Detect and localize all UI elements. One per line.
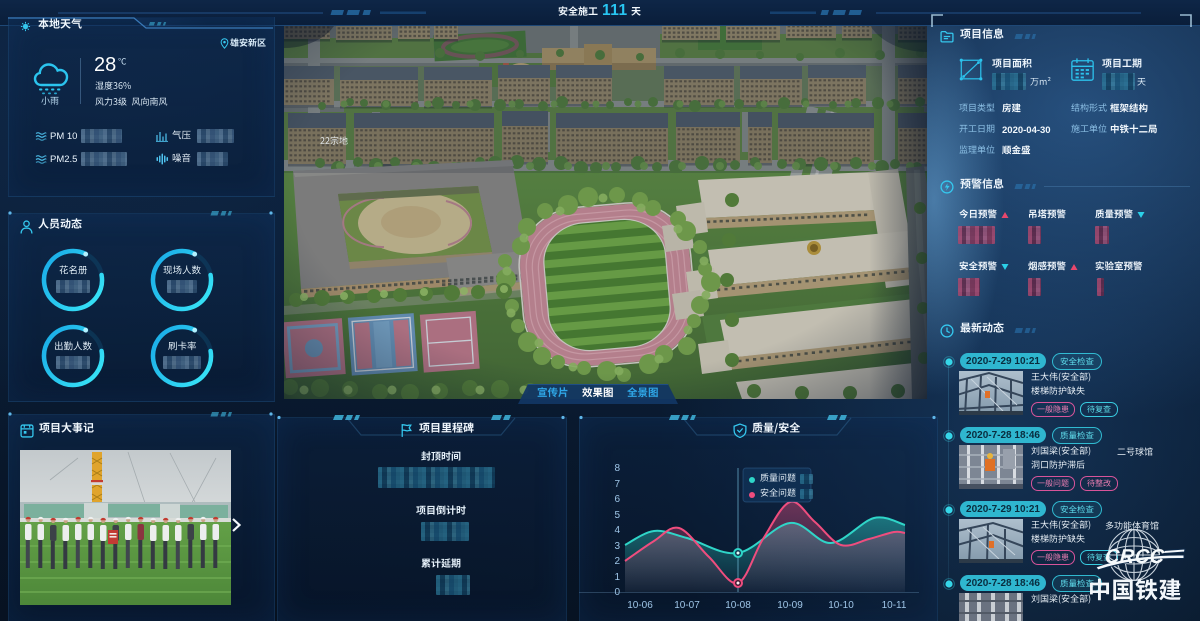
svg-text:2: 2: [614, 556, 620, 567]
svg-text:10-10: 10-10: [828, 600, 854, 611]
svg-text:3: 3: [614, 541, 620, 552]
svg-text:7: 7: [614, 479, 620, 490]
svg-text:10-06: 10-06: [627, 600, 653, 611]
svg-text:10-07: 10-07: [674, 600, 700, 611]
svg-text:6: 6: [614, 494, 620, 505]
svg-text:10-11: 10-11: [882, 600, 907, 611]
svg-text:8: 8: [614, 463, 620, 474]
svg-text:4: 4: [614, 525, 620, 536]
svg-text:10-08: 10-08: [725, 600, 751, 611]
svg-text:5: 5: [614, 510, 620, 521]
svg-text:10-09: 10-09: [777, 600, 803, 611]
svg-text:1: 1: [614, 572, 620, 583]
svg-text:CRCC: CRCC: [1104, 546, 1165, 568]
